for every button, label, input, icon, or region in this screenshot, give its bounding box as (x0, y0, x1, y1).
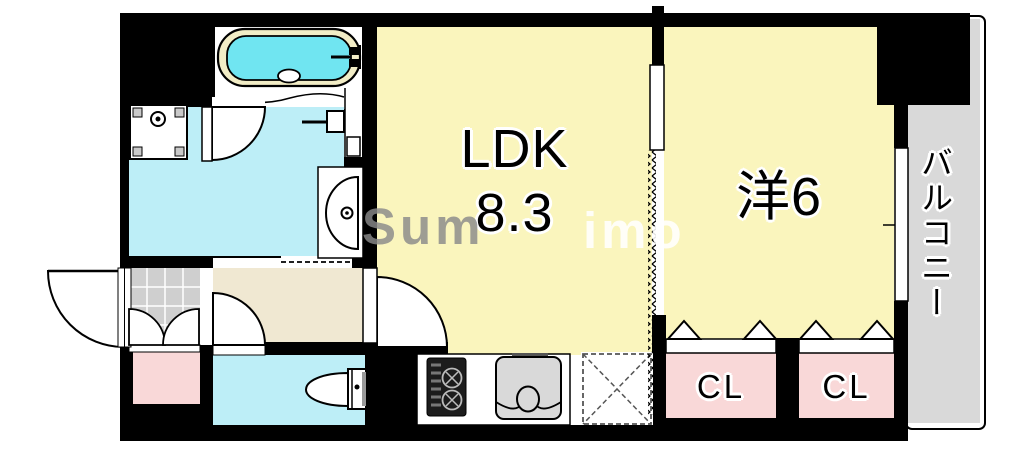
storage-room-floor (129, 352, 200, 404)
utility-column (345, 88, 362, 157)
storage-door-track (129, 345, 200, 352)
ldk-name: LDK (377, 118, 652, 182)
balcony-label: バルコニー (912, 146, 958, 361)
stove-icon (427, 358, 466, 416)
partition-panel (650, 65, 664, 150)
kitchen-sink-icon (496, 353, 561, 419)
closet-left-label: CL (666, 368, 776, 406)
closet-right-label: CL (799, 368, 894, 406)
washing-machine-pan-icon (130, 105, 187, 159)
kitchen-counter (417, 353, 570, 425)
ldk-area: 8.3 (377, 182, 652, 246)
floor-plan: LDK 8.3 洋6 CL CL バルコニー Sum imo (0, 0, 1032, 451)
refrigerator-space (581, 352, 653, 425)
entrance-door (48, 268, 131, 347)
western-room-label: 洋6 (664, 152, 894, 231)
ldk-room-label: LDK 8.3 (377, 118, 652, 245)
bathtub-icon (218, 29, 361, 86)
vanity-sink-icon (318, 167, 363, 258)
